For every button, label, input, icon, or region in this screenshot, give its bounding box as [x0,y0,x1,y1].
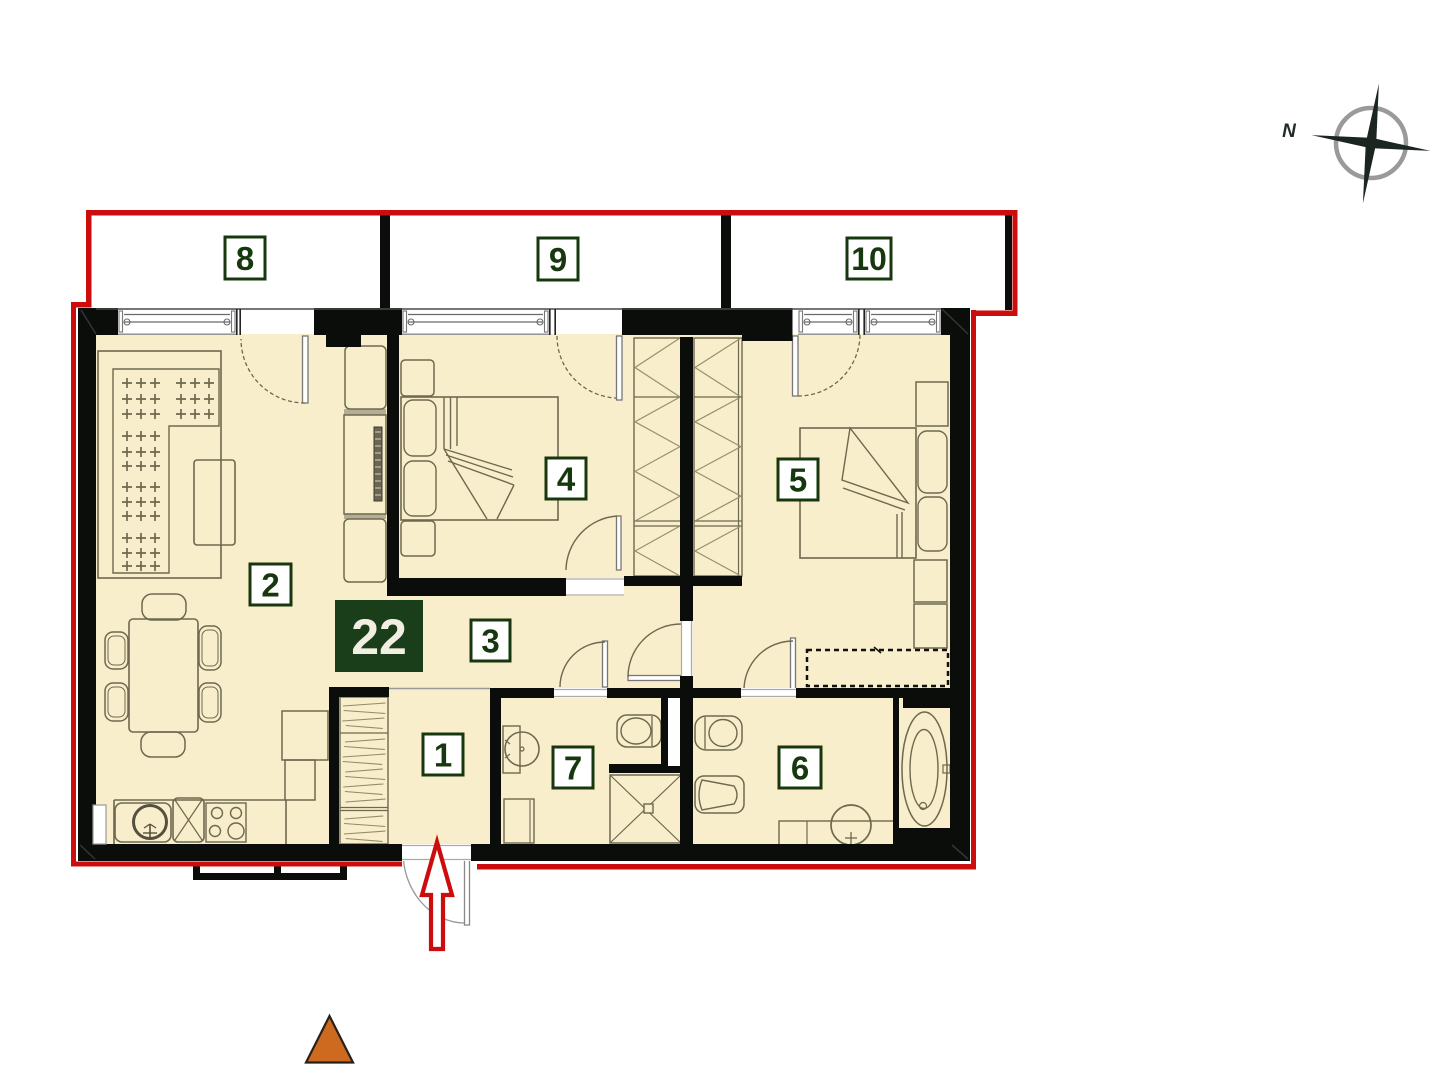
svg-text:10: 10 [851,241,887,277]
svg-text:1: 1 [434,736,452,773]
svg-text:5: 5 [789,461,807,498]
svg-text:9: 9 [549,241,567,278]
svg-text:3: 3 [481,622,499,659]
svg-text:8: 8 [236,240,254,277]
svg-text:N: N [1282,121,1297,142]
svg-text:2: 2 [261,566,279,603]
svg-text:6: 6 [791,749,809,786]
svg-text:7: 7 [564,749,582,786]
svg-text:4: 4 [557,460,576,497]
svg-text:22: 22 [351,609,407,665]
